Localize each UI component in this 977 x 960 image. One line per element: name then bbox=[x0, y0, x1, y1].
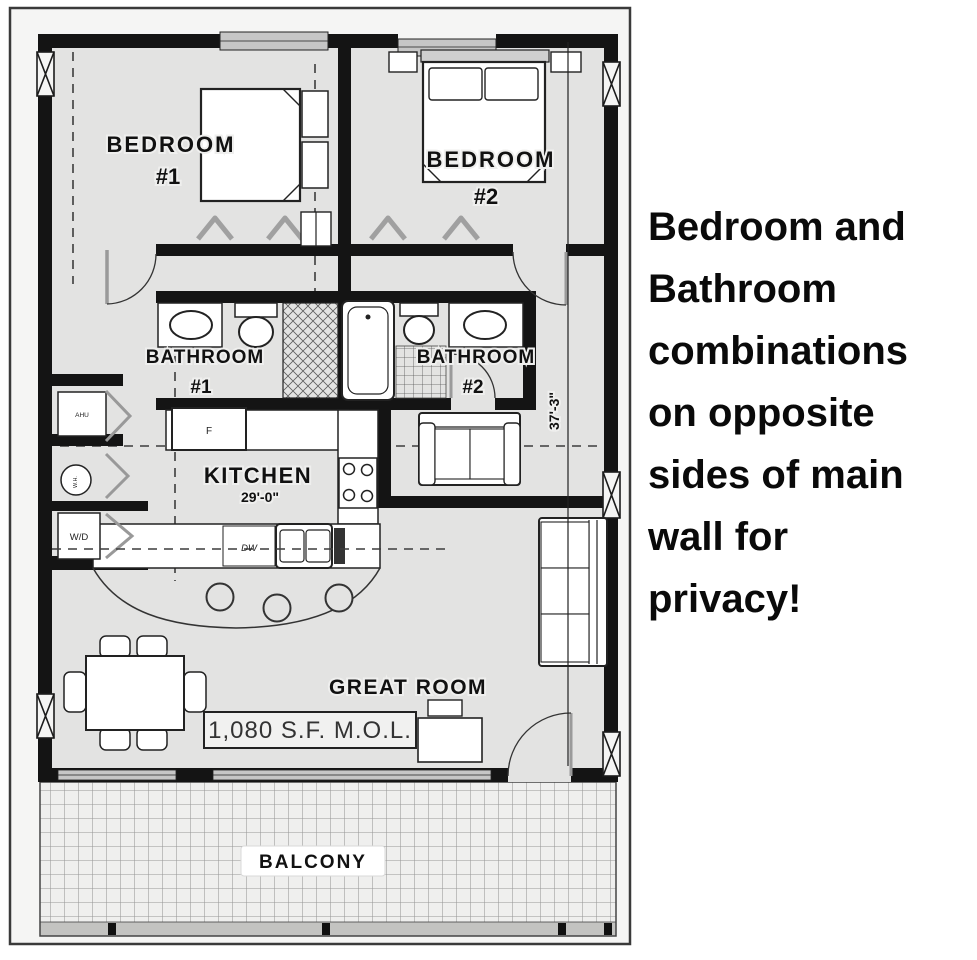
bedroom-1-label: BEDROOM bbox=[107, 132, 236, 157]
annotation-line: Bathroom bbox=[648, 258, 974, 320]
floor-plan: BEDROOM #1 BEDROOM #2 BATHROOM #1 BATHRO… bbox=[8, 6, 640, 948]
annotation-line: sides of main bbox=[648, 444, 974, 506]
annotation-line: Bedroom and bbox=[648, 196, 974, 258]
kitchen-label: KITCHEN bbox=[204, 463, 312, 488]
washer-dryer-label: W/D bbox=[70, 532, 89, 543]
loveseat-icon bbox=[419, 413, 520, 485]
fridge-label: F bbox=[206, 426, 212, 437]
annotation-line: privacy! bbox=[648, 568, 974, 630]
bedroom-2-number: #2 bbox=[474, 184, 498, 209]
sofa-icon bbox=[539, 518, 607, 666]
balcony-label: BALCONY bbox=[259, 852, 367, 873]
bathroom-1-number: #1 bbox=[190, 377, 212, 398]
area-text: 1,080 S.F. M.O.L. bbox=[208, 717, 412, 744]
stool-icon bbox=[264, 595, 291, 622]
bedroom-1-number: #1 bbox=[156, 164, 180, 189]
water-heater-label: W.H. bbox=[73, 476, 79, 488]
wall-chase bbox=[301, 212, 331, 246]
balcony-callout: BALCONY bbox=[241, 846, 385, 876]
annotation-text: Bedroom and Bathroom combinations on opp… bbox=[648, 196, 974, 630]
dishwasher-label: DW bbox=[241, 543, 258, 554]
floor-plan-frame: BEDROOM #1 BEDROOM #2 BATHROOM #1 BATHRO… bbox=[8, 6, 640, 948]
area-callout: 1,080 S.F. M.O.L. bbox=[204, 712, 416, 748]
screenshot-root: BEDROOM #1 BEDROOM #2 BATHROOM #1 BATHRO… bbox=[0, 0, 977, 960]
stool-icon bbox=[326, 585, 353, 612]
bathroom-2-number: #2 bbox=[462, 377, 483, 398]
kitchen-dimension: 29'-0" bbox=[241, 489, 279, 505]
bedroom-2-label: BEDROOM bbox=[427, 147, 556, 172]
annotation-line: combinations bbox=[648, 320, 974, 382]
stool-icon bbox=[207, 584, 234, 611]
bathroom-2-label: BATHROOM bbox=[417, 347, 535, 368]
great-room-label: GREAT ROOM bbox=[329, 676, 487, 699]
air-handler-label: AHU bbox=[75, 412, 89, 419]
height-dimension: 37'-3" bbox=[546, 392, 562, 430]
annotation-line: on opposite bbox=[648, 382, 974, 444]
bathroom-1-label: BATHROOM bbox=[146, 347, 264, 368]
annotation-line: wall for bbox=[648, 506, 974, 568]
